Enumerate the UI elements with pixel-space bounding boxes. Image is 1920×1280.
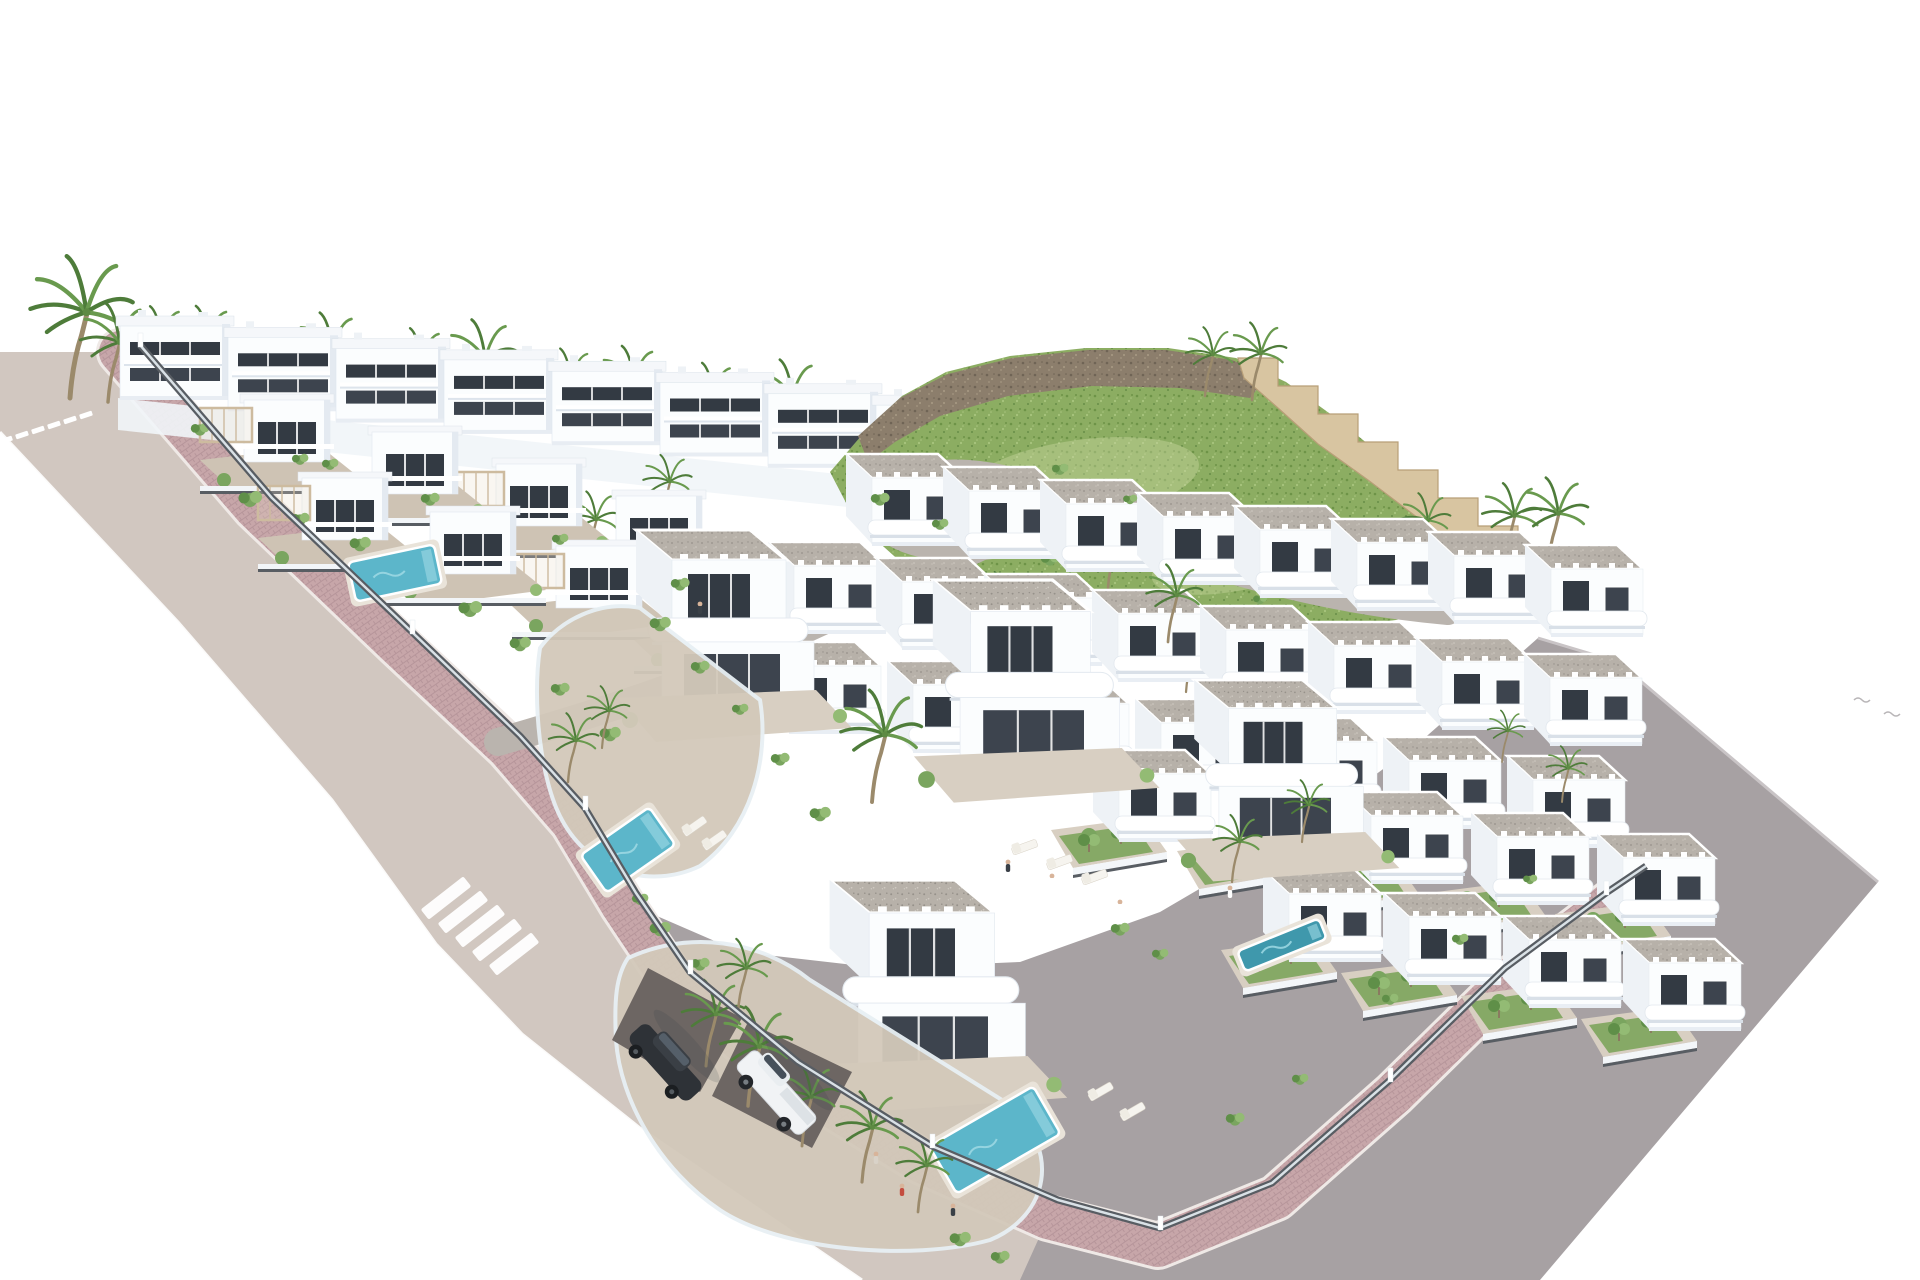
bush — [771, 753, 790, 766]
back-townhouse — [548, 355, 666, 445]
fence-post — [1158, 1216, 1163, 1230]
townhouse-unit — [1383, 893, 1505, 985]
bush — [459, 601, 483, 617]
townhouse-unit — [1092, 590, 1214, 682]
person — [900, 1184, 905, 1196]
townhouse-unit — [1416, 638, 1538, 730]
person — [951, 1204, 956, 1216]
person — [1050, 874, 1055, 886]
fence-post — [138, 333, 143, 347]
back-townhouse — [332, 333, 450, 423]
townhouse-unit — [1597, 834, 1719, 926]
townhouse-unit — [1524, 654, 1646, 746]
townhouse-unit — [1503, 916, 1625, 1008]
fence-post — [583, 796, 588, 810]
render-canvas — [0, 0, 1920, 1280]
fence-post — [410, 620, 415, 634]
bird-mark — [1884, 712, 1900, 716]
person — [1228, 886, 1233, 898]
person — [1006, 860, 1011, 872]
bush — [810, 807, 831, 821]
fence-post — [688, 960, 693, 974]
back-townhouse — [440, 344, 558, 434]
aerial-render-villa-development — [0, 0, 1920, 1280]
bird-marks — [1854, 698, 1900, 716]
bird-mark — [1854, 698, 1870, 702]
back-townhouse — [656, 367, 774, 457]
townhouse-unit — [1471, 813, 1593, 905]
fence-post — [930, 1134, 935, 1148]
townhouse-unit — [1525, 545, 1647, 637]
townhouse-unit — [1623, 939, 1745, 1031]
person — [874, 1152, 879, 1164]
bush — [510, 637, 531, 651]
person — [698, 602, 703, 614]
person — [1118, 900, 1123, 912]
sun-lounger — [1010, 836, 1038, 855]
fence-post — [1388, 1068, 1393, 1082]
fence-post — [1604, 881, 1609, 895]
